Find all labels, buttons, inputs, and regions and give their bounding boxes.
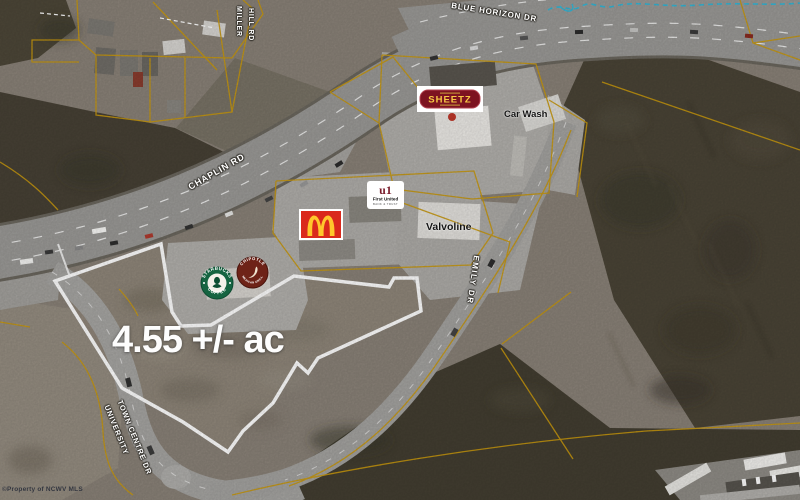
aerial-map: BLUE HORIZON DR MILLER HILL RD CHAPLIN R… bbox=[0, 0, 800, 500]
first-united-mark: u1 bbox=[379, 183, 392, 197]
first-united-name: First United bbox=[373, 197, 399, 202]
first-united-subtitle: BANK & TRUST bbox=[373, 202, 398, 206]
sheetz-logo: SHEETZ bbox=[417, 86, 483, 112]
mcdonalds-logo bbox=[299, 209, 343, 240]
aerial-photo bbox=[0, 0, 800, 500]
chipotle-logo: CHIPOTLE MEXICAN GRILL bbox=[236, 256, 269, 289]
first-united-logo: u1 First United BANK & TRUST bbox=[367, 181, 404, 209]
photo-grain bbox=[0, 0, 800, 500]
siren-icon bbox=[214, 277, 220, 284]
sheetz-wordmark: SHEETZ bbox=[428, 95, 471, 106]
starbucks-logo: STARBUCKS COFFEE bbox=[200, 266, 234, 300]
